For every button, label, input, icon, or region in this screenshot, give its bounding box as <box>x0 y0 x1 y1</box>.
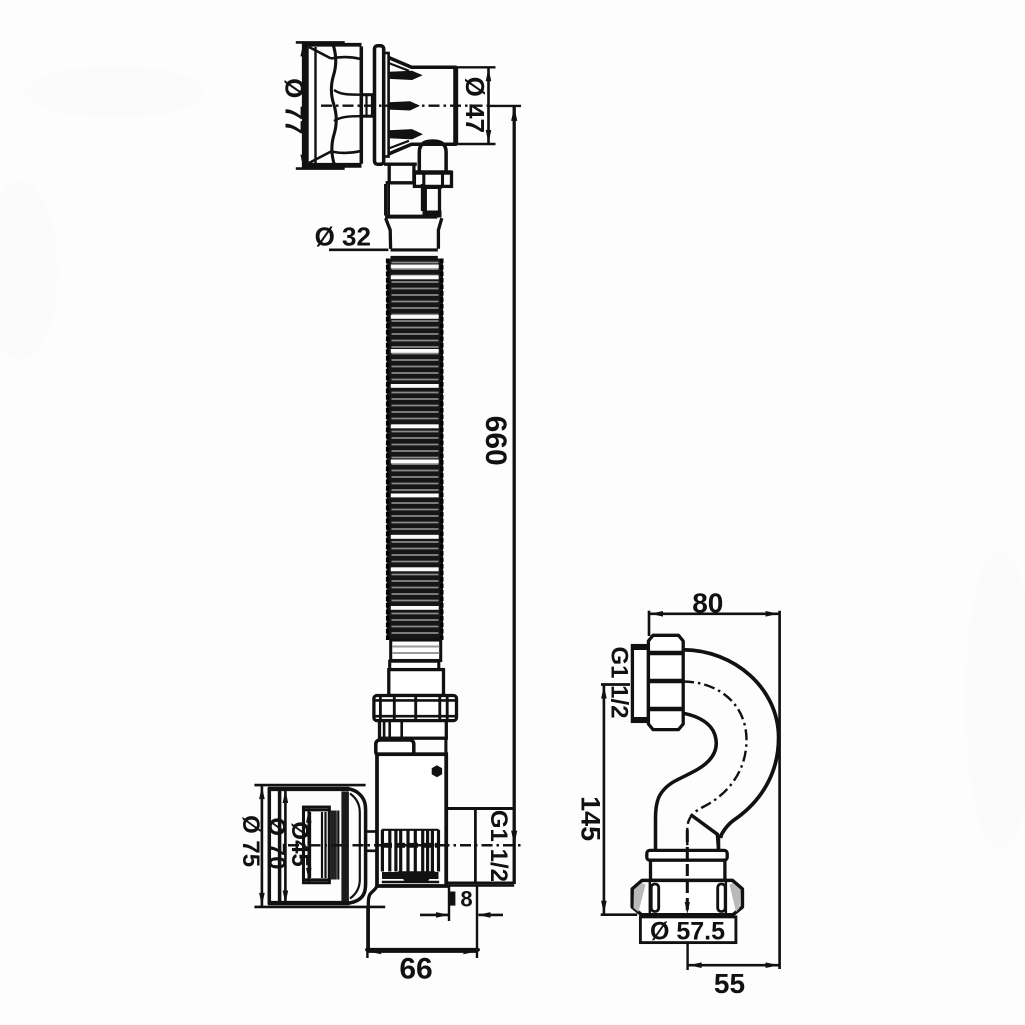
svg-text:Ø 77: Ø 77 <box>279 78 309 134</box>
svg-text:660: 660 <box>479 416 512 466</box>
svg-text:66: 66 <box>399 953 432 986</box>
svg-text:Ø45: Ø45 <box>286 821 313 866</box>
svg-text:Ø 75: Ø 75 <box>237 815 264 867</box>
svg-text:G1 1/2: G1 1/2 <box>485 810 512 882</box>
svg-text:Ø 47: Ø 47 <box>460 77 490 133</box>
svg-text:80: 80 <box>692 588 723 619</box>
svg-text:Ø 57.5: Ø 57.5 <box>650 918 725 946</box>
svg-text:8: 8 <box>460 887 472 912</box>
svg-text:Ø 32: Ø 32 <box>315 222 371 252</box>
svg-text:55: 55 <box>714 968 745 999</box>
svg-text:145: 145 <box>576 796 606 841</box>
svg-text:Ø 70: Ø 70 <box>263 817 290 869</box>
svg-text:G1 1/2: G1 1/2 <box>606 646 633 718</box>
